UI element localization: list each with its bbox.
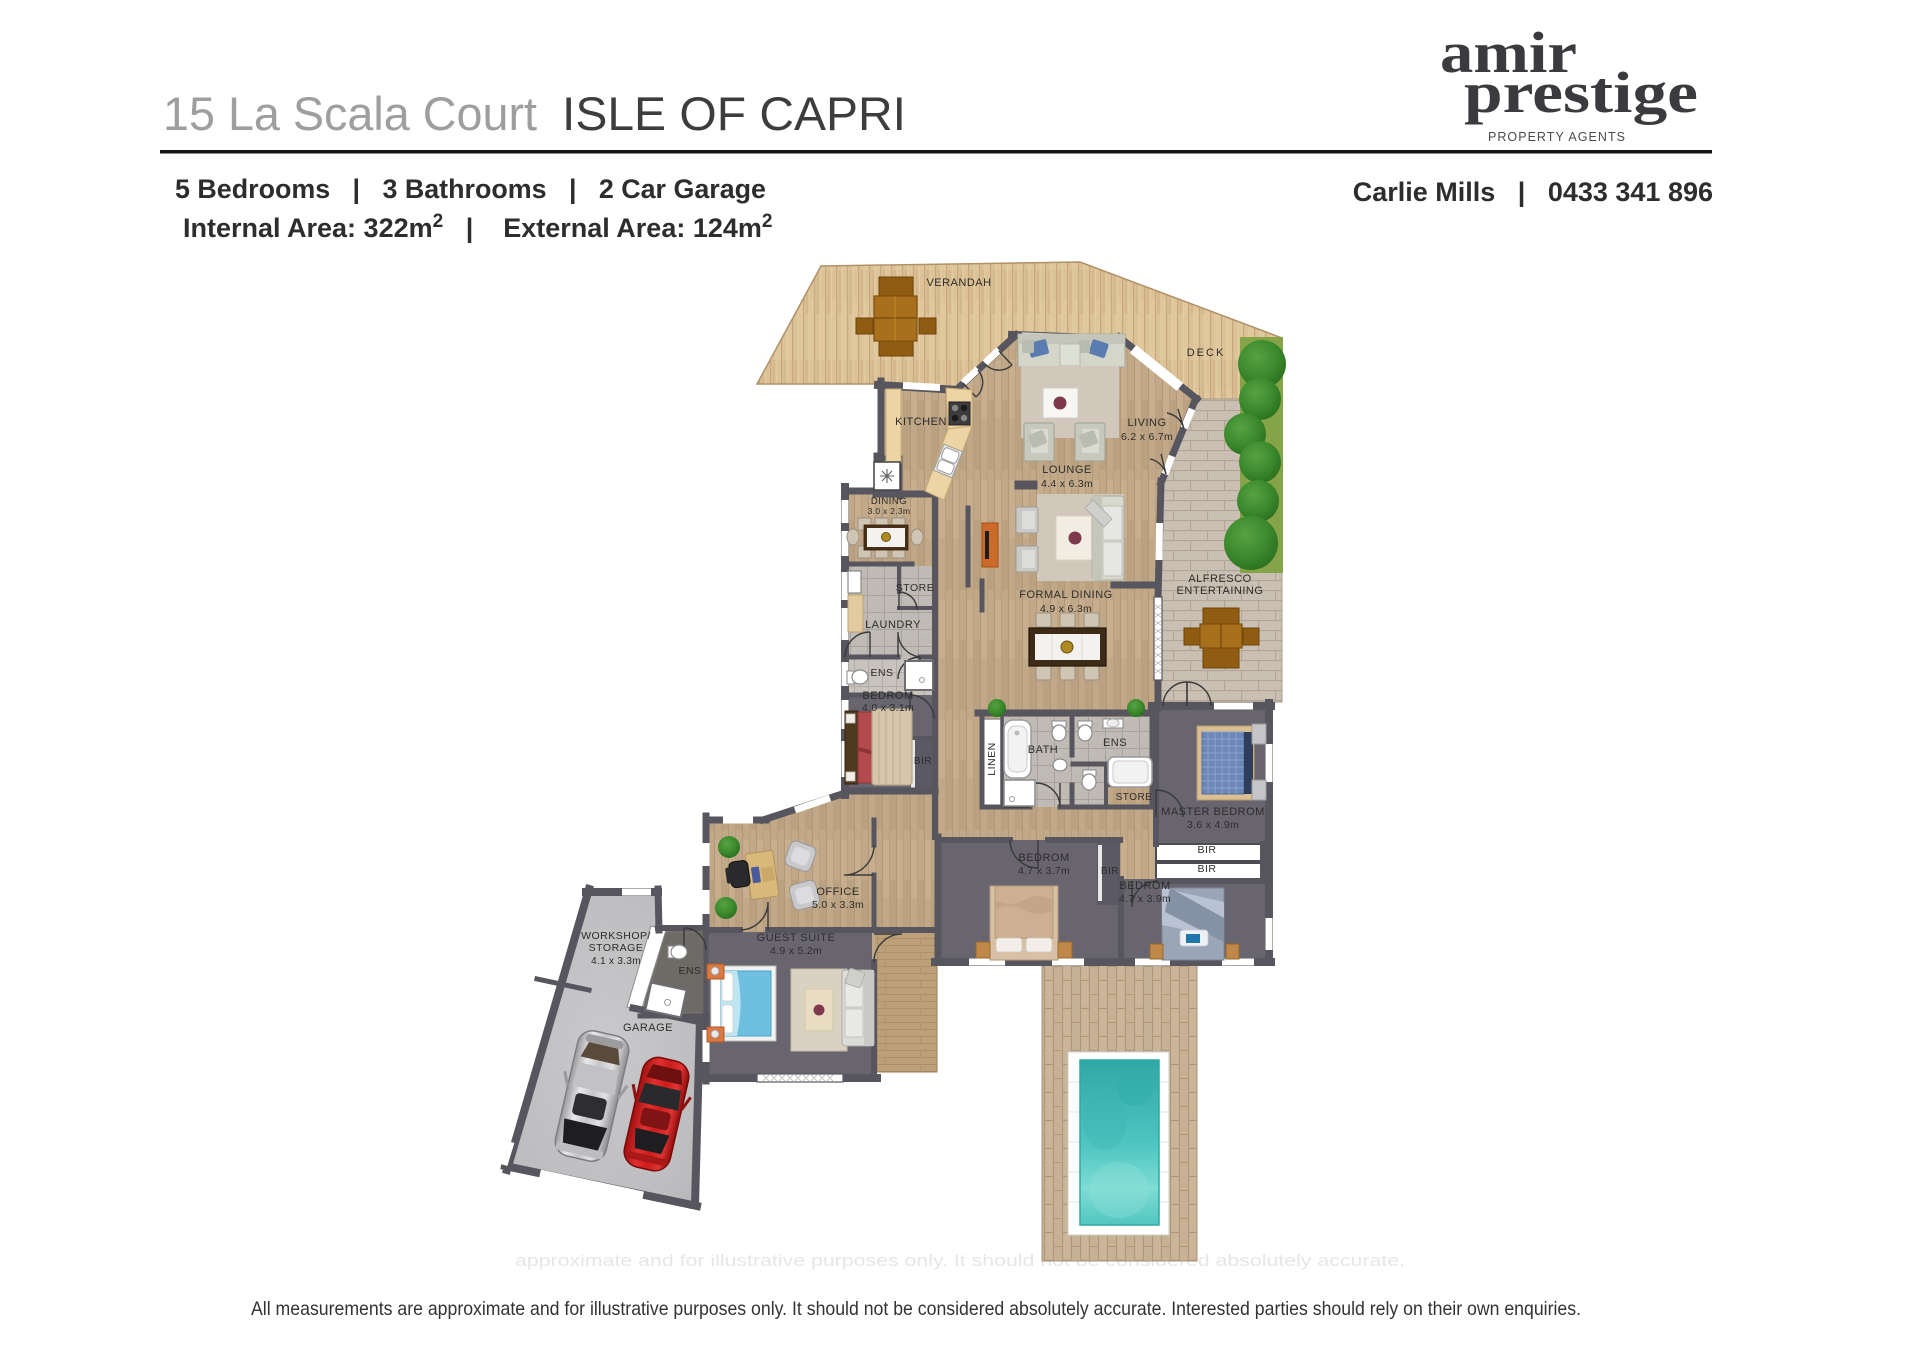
svg-text:approximate and for illustrati: approximate and for illustrative purpose… [515, 1252, 1405, 1270]
svg-text:4.0 x 3.1m: 4.0 x 3.1m [862, 702, 914, 714]
svg-text:15 La Scala Court: 15 La Scala Court [163, 87, 537, 140]
svg-text:LIVING: LIVING [1127, 417, 1166, 429]
svg-text:4.9 x 6.3m: 4.9 x 6.3m [1040, 603, 1092, 615]
svg-text:ISLE OF CAPRI: ISLE OF CAPRI [562, 87, 906, 140]
svg-text:LAUNDRY: LAUNDRY [865, 619, 921, 631]
svg-text:4.1 x 3.3m: 4.1 x 3.3m [591, 956, 641, 967]
svg-text:6.2 x 6.7m: 6.2 x 6.7m [1121, 431, 1173, 443]
svg-text:KITCHEN: KITCHEN [895, 416, 947, 428]
svg-text:STORE: STORE [896, 582, 934, 594]
svg-text:4.4 x 6.3m: 4.4 x 6.3m [1041, 478, 1093, 490]
svg-text:ENS: ENS [1103, 737, 1127, 749]
svg-text:DECK: DECK [1187, 347, 1226, 359]
svg-text:ENS: ENS [870, 667, 893, 679]
svg-text:PROPERTY AGENTS: PROPERTY AGENTS [1488, 130, 1625, 144]
svg-text:5 Bedrooms | 3 Bathrooms: 5 Bedrooms | 3 Bathrooms | 2 Car Garage [175, 174, 766, 204]
svg-text:4.7 x 3.7m: 4.7 x 3.7m [1018, 865, 1070, 877]
svg-text:All measurements are approxima: All measurements are approximate and for… [251, 1298, 1581, 1320]
svg-text:BEDROM: BEDROM [1119, 880, 1170, 892]
svg-text:WORKSHOP/: WORKSHOP/ [581, 930, 651, 942]
svg-text:BEDROM: BEDROM [1018, 852, 1069, 864]
svg-text:4.7 x 3.9m: 4.7 x 3.9m [1119, 893, 1171, 905]
svg-text:LINEN: LINEN [986, 742, 998, 775]
svg-text:STORAGE: STORAGE [589, 942, 644, 954]
svg-text:4.9 x 5.2m: 4.9 x 5.2m [770, 945, 822, 957]
svg-text:BIR: BIR [914, 756, 932, 767]
svg-text:STORE: STORE [1116, 792, 1153, 803]
svg-text:prestige: prestige [1464, 60, 1698, 125]
svg-text:MASTER BEDROM: MASTER BEDROM [1161, 806, 1265, 818]
svg-text:BIR: BIR [1197, 844, 1216, 856]
svg-text:FORMAL DINING: FORMAL DINING [1019, 589, 1113, 601]
svg-text:BIR: BIR [1197, 863, 1216, 875]
svg-text:BATH: BATH [1028, 744, 1059, 756]
svg-text:ALFRESCO: ALFRESCO [1188, 573, 1251, 585]
svg-text:BIR: BIR [1101, 866, 1119, 877]
svg-text:GARAGE: GARAGE [623, 1022, 673, 1034]
svg-text:ENTERTAINING: ENTERTAINING [1177, 585, 1264, 597]
svg-text:Carlie Mills | 0433 341 89: Carlie Mills | 0433 341 896 [1353, 177, 1713, 207]
svg-text:ENS: ENS [678, 965, 701, 977]
svg-text:5.0 x 3.3m: 5.0 x 3.3m [812, 899, 864, 911]
svg-text:VERANDAH: VERANDAH [926, 277, 991, 289]
svg-text:3.6 x 4.9m: 3.6 x 4.9m [1187, 819, 1239, 831]
svg-text:LOUNGE: LOUNGE [1042, 464, 1091, 476]
svg-text:3.0 x 2.3m: 3.0 x 2.3m [868, 506, 911, 516]
svg-text:BEDROM: BEDROM [862, 690, 913, 702]
svg-text:OFFICE: OFFICE [816, 886, 859, 898]
svg-text:Internal Area: 322m2 | Ex: Internal Area: 322m2 | External Area: 12… [183, 211, 772, 243]
svg-text:GUEST SUITE: GUEST SUITE [757, 932, 836, 944]
